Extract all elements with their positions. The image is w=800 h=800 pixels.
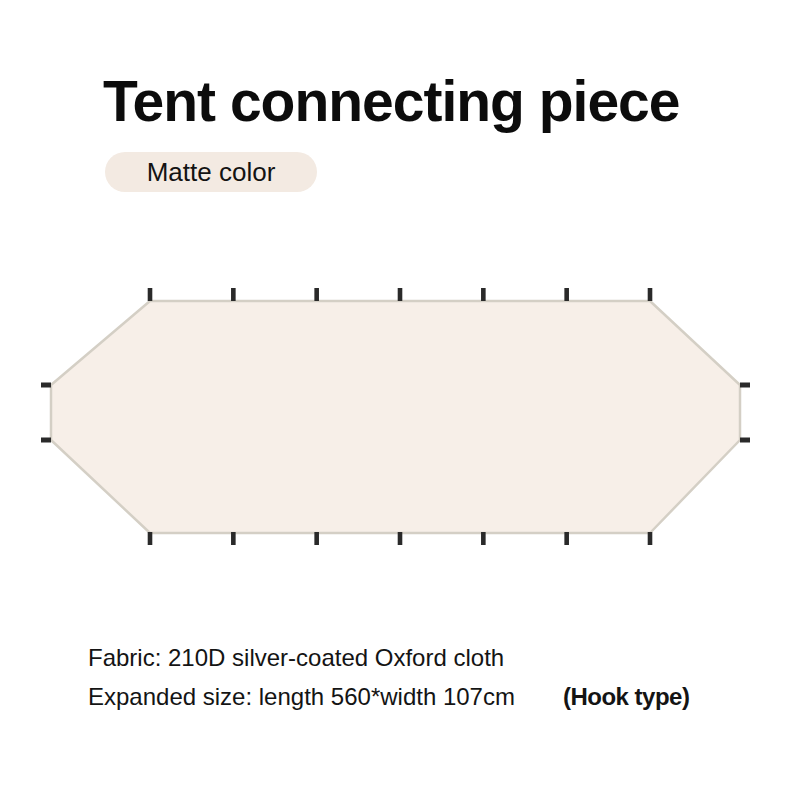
hook-mark [481, 288, 486, 301]
size-spec-row: Expanded size: length 560*width 107cm (H… [88, 683, 689, 711]
hook-mark [648, 532, 653, 545]
size-spec: Expanded size: length 560*width 107cm [88, 685, 515, 709]
hook-mark [481, 532, 486, 545]
hook-mark [740, 438, 750, 443]
hook-mark [564, 288, 569, 301]
hook-mark [314, 532, 319, 545]
hook-mark [148, 288, 153, 301]
product-infographic: Tent connecting piece Matte color Fabric… [0, 0, 800, 800]
specs-block: Fabric: 210D silver-coated Oxford cloth … [88, 646, 689, 711]
hook-mark [231, 532, 236, 545]
hook-mark [231, 288, 236, 301]
hook-mark [648, 288, 653, 301]
hook-mark [564, 532, 569, 545]
tarp-outline [51, 301, 740, 533]
hook-mark [398, 288, 403, 301]
fabric-spec: Fabric: 210D silver-coated Oxford cloth [88, 646, 689, 670]
hook-mark [41, 383, 51, 388]
hook-mark [314, 288, 319, 301]
hook-type-label: (Hook type) [563, 683, 690, 711]
hook-mark [148, 532, 153, 545]
hook-mark [740, 383, 750, 388]
hook-mark [398, 532, 403, 545]
hook-mark [41, 438, 51, 443]
